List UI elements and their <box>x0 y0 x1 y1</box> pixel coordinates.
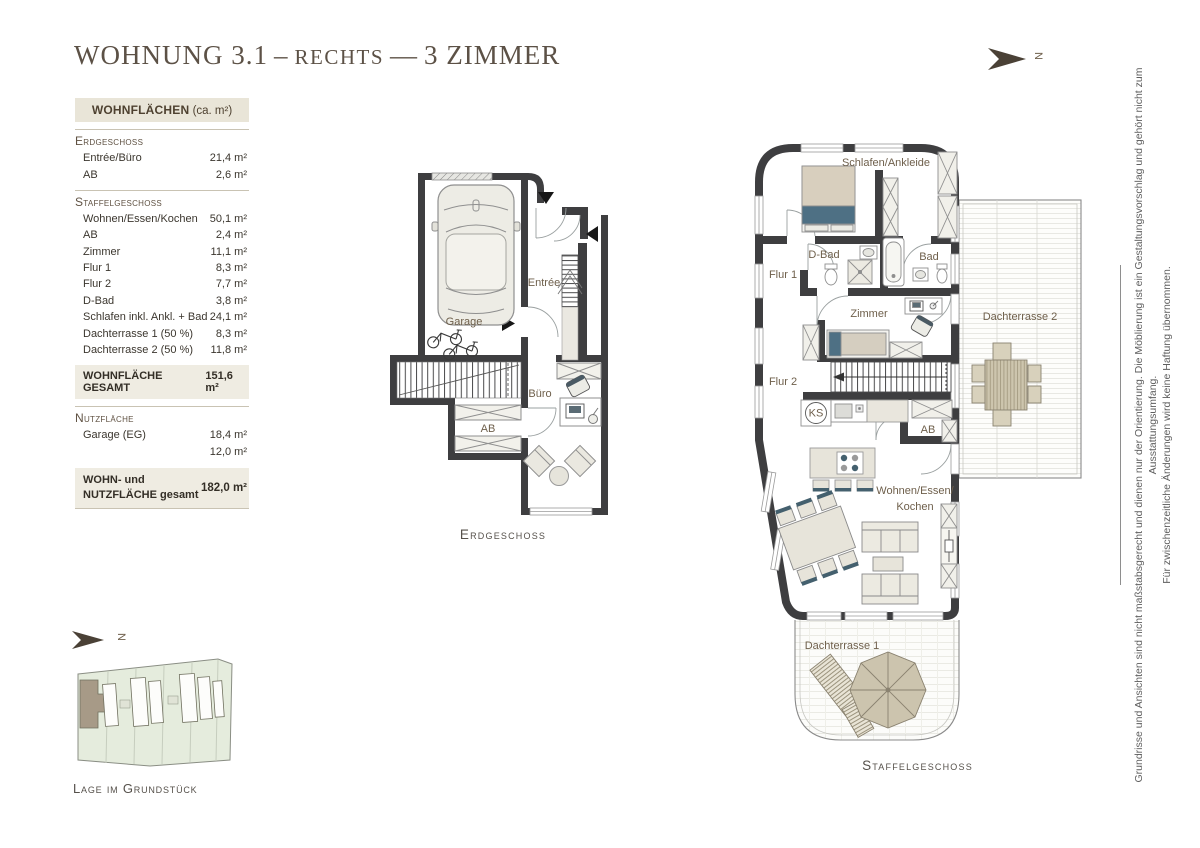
section-staffelgeschoss: Staffelgeschoss <box>75 190 249 211</box>
floorplan-staffelgeschoss: Schlafen/Ankleide D-Bad Bad Flur 1 Zimme… <box>745 138 1090 788</box>
row-label: Entrée/Büro <box>83 152 142 164</box>
row-label: Garage (EG) <box>83 429 146 441</box>
row-value: 8,3 m² <box>216 328 247 340</box>
row-value: 24,1 m² <box>210 311 247 323</box>
row-label: Zimmer <box>83 246 120 258</box>
disclaimer-line2: Für zwischenzeitliche Änderungen wird ke… <box>1160 43 1174 807</box>
total-overall-row: WOHN- und NUTZFLÄCHE gesamt 182,0 m² <box>75 468 249 509</box>
row-value: 7,7 m² <box>216 278 247 290</box>
table-row: AB2,6 m² <box>75 166 249 182</box>
table-row: Entrée/Büro21,4 m² <box>75 150 249 166</box>
row-label: AB <box>83 169 98 181</box>
section-erdgeschoss: Erdgeschoss <box>75 129 249 150</box>
row-value: 2,4 m² <box>216 229 247 241</box>
dachterrasse2 <box>959 200 1081 478</box>
north-arrow-icon <box>988 48 1026 70</box>
site-plan: N <box>68 626 243 776</box>
kitchen-island <box>810 448 875 492</box>
eg-window <box>530 508 592 515</box>
car-icon <box>432 185 520 325</box>
row-value: 11,1 m² <box>211 246 247 258</box>
label-schlafen: Schlafen/Ankleide <box>842 157 930 169</box>
table-row: D-Bad3,8 m² <box>75 293 249 309</box>
table-row: Garage (EG)18,4 m² <box>75 427 249 443</box>
row-value: 50,1 m² <box>210 213 247 225</box>
row-label: Dachterrasse 1 (50 %) <box>83 328 193 340</box>
row-value: 21,4 m² <box>210 152 247 164</box>
label-ab: AB <box>921 424 936 436</box>
floorplan-erdgeschoss: Garage Entrée Büro AB <box>388 168 618 548</box>
armchair-group <box>523 445 595 485</box>
section-nutzflaeche: Nutzfläche <box>75 406 249 427</box>
row-value: 12,0 m² <box>210 446 247 458</box>
fold-mark <box>1120 265 1121 585</box>
row-label: Schlafen inkl. Ankl. + Bad <box>83 311 207 323</box>
label-zimmer: Zimmer <box>850 308 888 320</box>
garage-door <box>432 173 492 180</box>
total-living-row: WOHNFLÄCHE GESAMT 151,6 m² <box>75 365 249 399</box>
title-dash1: – <box>268 40 295 70</box>
north-letter: N <box>1032 52 1044 60</box>
north-arrow-site: N <box>72 631 127 649</box>
label-wohnen2: Kochen <box>896 501 933 513</box>
total-label: WOHNFLÄCHE GESAMT <box>83 370 205 394</box>
title-rooms: 3 ZIMMER <box>424 40 560 70</box>
area-table: WOHNFLÄCHEN (ca. m²) Erdgeschoss Entrée/… <box>75 98 249 509</box>
label-dbad: D-Bad <box>808 249 839 261</box>
table-row: Zimmer11,1 m² <box>75 244 249 260</box>
label-entree: Entrée <box>528 277 560 289</box>
area-table-header: WOHNFLÄCHEN (ca. m²) <box>75 98 249 122</box>
label-wohnen1: Wohnen/Essen/ <box>876 485 954 497</box>
title-side: RECHTS <box>294 45 384 69</box>
caption-site-plan: Lage im Grundstück <box>73 781 197 796</box>
brochure-page: WOHNUNG 3.1–RECHTS—3 ZIMMER N WOHNFLÄCHE… <box>0 0 1200 848</box>
row-value: 11,8 m² <box>211 344 247 356</box>
caption-staffelgeschoss: Staffelgeschoss <box>745 758 1090 773</box>
label-garage: Garage <box>446 316 483 328</box>
total-value: 151,6 m² <box>205 370 247 394</box>
label-bad: Bad <box>919 251 939 263</box>
row-value: 2,6 m² <box>216 169 247 181</box>
row-value: 18,4 m² <box>210 429 247 441</box>
parasol-icon <box>850 652 926 728</box>
caption-erdgeschoss: Erdgeschoss <box>388 527 618 542</box>
table-row: Schlafen inkl. Ankl. + Bad24,1 m² <box>75 309 249 325</box>
row-label: Dachterrasse 2 (50 %) <box>83 344 193 356</box>
label-dachterrasse1: Dachterrasse 1 <box>805 640 880 652</box>
area-table-title: WOHNFLÄCHEN <box>92 103 190 117</box>
label-ab: AB <box>481 423 496 435</box>
row-value: 8,3 m² <box>216 262 247 274</box>
total-value: 182,0 m² <box>201 482 247 494</box>
double-bed <box>802 166 855 232</box>
row-label: Flur 2 <box>83 278 111 290</box>
north-arrow: N <box>986 44 1056 78</box>
table-row: Wohnen/Essen/Kochen50,1 m² <box>75 211 249 227</box>
area-table-unit: (ca. m²) <box>193 105 233 117</box>
total-label: WOHN- und NUTZFLÄCHE gesamt <box>83 473 199 503</box>
row-label: AB <box>83 229 98 241</box>
row-label: D-Bad <box>83 295 114 307</box>
label-flur2: Flur 2 <box>769 376 797 388</box>
table-row: Flur 27,7 m² <box>75 276 249 292</box>
table-row: 12,0 m² <box>75 444 249 460</box>
disclaimer-text: Grundrisse und Ansichten sind nicht maßs… <box>1132 43 1162 807</box>
title-apartment: WOHNUNG 3.1 <box>74 40 268 70</box>
dachterrasse1 <box>795 620 959 740</box>
title-dash2: — <box>384 40 424 70</box>
label-dachterrasse2: Dachterrasse 2 <box>983 311 1058 323</box>
north-letter-site: N <box>115 633 127 641</box>
tv-bench <box>941 504 957 588</box>
label-buero: Büro <box>528 388 551 400</box>
og-staircase <box>831 362 951 392</box>
table-row: Flur 18,3 m² <box>75 260 249 276</box>
disclaimer-line1: Grundrisse und Ansichten sind nicht maßs… <box>1132 43 1160 807</box>
page-title: WOHNUNG 3.1–RECHTS—3 ZIMMER <box>74 40 560 71</box>
row-label: Wohnen/Essen/Kochen <box>83 213 198 225</box>
table-row: Dachterrasse 2 (50 %)11,8 m² <box>75 342 249 358</box>
label-flur1: Flur 1 <box>769 269 797 281</box>
table-row: Dachterrasse 1 (50 %)8,3 m² <box>75 325 249 341</box>
table-row: AB2,4 m² <box>75 227 249 243</box>
desk-group <box>560 374 601 426</box>
label-ks: KS <box>809 408 824 420</box>
driveway-ramp <box>397 362 521 398</box>
row-value: 3,8 m² <box>216 295 247 307</box>
row-label: Flur 1 <box>83 262 111 274</box>
